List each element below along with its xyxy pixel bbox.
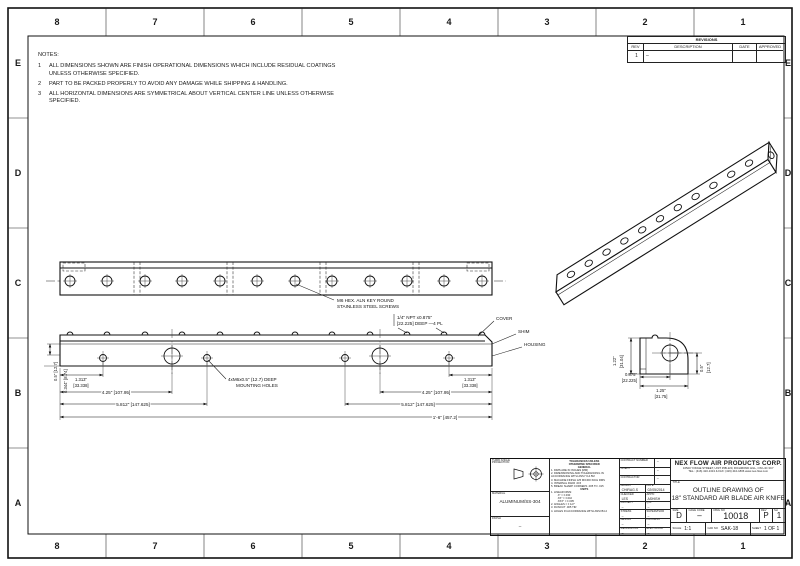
tol-units-7: 4. HOLES IN ACCORDANCE WITH ANSI B4.2 (551, 510, 618, 513)
approved-value: ASHISH (646, 497, 661, 501)
drawing-title-line1: OUTLINE DRAWING OF (671, 487, 785, 494)
callout-mounting-line1: 4xM6x0.5" (12.7) DEEP (228, 377, 277, 382)
cad-label: CAD NO (706, 528, 718, 531)
rev-row-date (733, 51, 757, 62)
title-block-column-d: NEX FLOW AIR PRODUCTS CORP. 10520 YONGE … (671, 459, 785, 535)
scale-cell: SCALE 1:1 (671, 523, 706, 535)
design-label: DESIGN (620, 519, 645, 522)
zone-right-b: B (785, 388, 792, 398)
process-label: PROCESS (646, 519, 671, 522)
zone-left-e: E (15, 58, 21, 68)
notes-block: NOTES: 1 ALL DIMENSIONS SHOWN ARE FINISH… (38, 52, 338, 109)
dim-side-0875-in: 0.875" (625, 372, 637, 377)
zone-left-a: A (15, 498, 22, 508)
zone-top-8: 8 (54, 17, 59, 27)
zone-top-4: 4 (446, 17, 451, 27)
contractor-value: – (655, 476, 659, 480)
rev-value: P (760, 512, 772, 520)
top-view (46, 262, 506, 295)
company-address2: TEL.: (416) 410-1313 & FAX: (416) 410-18… (671, 470, 785, 473)
notes-title: NOTES: (38, 52, 338, 59)
top-view-outline (60, 262, 492, 295)
dim-side-0875-mm: [22.225] (622, 378, 637, 383)
size-cell: SIZE D (671, 509, 687, 522)
zone-bottom-4: 4 (446, 541, 451, 551)
electrical-value: – (646, 531, 650, 535)
contract-row: CONTRACT NUMBER – (620, 459, 671, 468)
title-block-fields: CONTRACT NUMBER – CLIENT – CONTRACTOR – … (620, 459, 672, 535)
zone-right-c: C (785, 278, 792, 288)
rev-col-description: DESCRIPTION (644, 44, 733, 51)
qa-value: – (646, 505, 650, 509)
rev-col-rev: REV (628, 44, 644, 51)
note-text: ALL HORIZONTAL DIMENSIONS ARE SYMMETRICA… (49, 91, 338, 106)
project-value: – (620, 505, 624, 509)
sh-cell: SH 1 (773, 509, 785, 522)
callout-npt-line2: [22.225] DEEP —4 PL (397, 321, 443, 326)
drawn-value: CHIRAG.S (620, 488, 638, 492)
dwg-value: 10018 (712, 512, 759, 521)
zone-left-c: C (15, 278, 22, 288)
checked-approved-row: CHECKEDLES APP'DASHISH (620, 493, 671, 502)
material-value: ALUMINUM/SS-304 (491, 499, 549, 504)
client-label: CLIENT (620, 468, 654, 471)
dim-5812-right: 5.812" [147.625] (401, 402, 435, 407)
client-value: – (655, 468, 659, 472)
note-item: 1 ALL DIMENSIONS SHOWN ARE FINISH OPERAT… (38, 63, 338, 78)
checked-value: LES (620, 497, 628, 501)
contractor-label: CONTRACTOR (620, 476, 654, 479)
stress-supervisor-row: STRESS– SUPERVISOR– (620, 510, 671, 519)
finish-cell: FINISH – (491, 517, 549, 535)
note-item: 2 PART TO BE PACKED PROPERLY TO AVOID AN… (38, 81, 338, 88)
isometric-view (549, 142, 785, 304)
stress-label: STRESS (620, 510, 645, 513)
project-qa-row: PROJECT– Q.A.– (620, 502, 671, 511)
rev-col-date: DATE (733, 44, 757, 51)
electrical-label: ELECTRICAL (646, 528, 671, 531)
material-cell: MATERIAL ALUMINUM/SS-304 (491, 492, 549, 517)
dim-1313-left-in: 1.313" (75, 377, 87, 382)
rev-cell: REV P (760, 509, 773, 522)
projection-cell: THIRD ANGLE PROJECTION (491, 459, 549, 492)
zone-bottom-8: 8 (54, 541, 59, 551)
note-number: 2 (38, 81, 44, 88)
mechanical-label: MECHANICAL (620, 528, 645, 531)
zone-bottom-7: 7 (152, 541, 157, 551)
dim-height-v2: 0.344" [8.74] (63, 369, 68, 393)
zone-top-3: 3 (544, 17, 549, 27)
date-value: 02/05/2014 (646, 488, 665, 492)
drawing-title-line2: 18" STANDARD AIR BLADE AIR KNIFE (671, 495, 785, 502)
dim-side-height-in: 1.22" (612, 356, 617, 366)
dim-side-width-in: 1.25" (656, 388, 666, 393)
zone-bottom-3: 3 (544, 541, 549, 551)
size-value: D (671, 512, 686, 520)
design-value: – (620, 522, 624, 526)
rev-col-approved: APPROVED (757, 44, 783, 51)
third-angle-projection-symbol (511, 459, 549, 489)
drawing-sheet: 1.313" [33.338] 1.313" [33.338] 4.25" [1… (0, 0, 800, 566)
dim-425-left: 4.25" [107.95] (102, 390, 130, 395)
zone-right-d: D (785, 168, 792, 178)
dwg-no-cell: DWG NO 10018 (712, 509, 760, 522)
callout-screws-line1: M6 HEX. ALN KEY ROUND (337, 298, 395, 303)
drawn-date-row: DRAWNCHIRAG.S DATE02/05/2014 (620, 485, 671, 494)
zone-bottom-2: 2 (642, 541, 647, 551)
design-process-row: DESIGN– PROCESS– (620, 519, 671, 528)
finish-label: FINISH (491, 517, 549, 520)
callout-housing: HOUSING (524, 342, 546, 347)
tolerances-cell: TOLERANCES UNLESS OTHERWISE SPECIFIED GE… (550, 459, 620, 535)
cad-no-cell: CAD NO SAK-18 (706, 523, 751, 535)
zone-top-6: 6 (250, 17, 255, 27)
callout-shim: SHIM (518, 329, 530, 334)
dim-side-05-in: 0.5" (699, 364, 704, 372)
note-number: 3 (38, 91, 44, 106)
dim-1313-right-in: 1.313" (464, 377, 476, 382)
revisions-title: REVISIONS (628, 37, 785, 44)
zone-left-d: D (15, 168, 22, 178)
note-item: 3 ALL HORIZONTAL DIMENSIONS ARE SYMMETRI… (38, 91, 338, 106)
dim-425-right: 4.25" [107.95] (422, 390, 450, 395)
zone-bottom-5: 5 (348, 541, 353, 551)
dim-height-v1: 0.5" [12.7] (53, 362, 58, 381)
cage-value: – (687, 512, 711, 520)
dim-side-height-mm: [31.04] (619, 355, 624, 368)
project-label: PROJECT (620, 502, 645, 505)
callout-npt-line1: 1/4" NPT x0.875" (397, 315, 432, 320)
sh-value: 1 (773, 512, 785, 520)
projection-label: THIRD ANGLE PROJECTION (491, 459, 511, 491)
contractor-row: CONTRACTOR – (620, 476, 671, 485)
dim-1313-left-mm: [33.338] (73, 383, 88, 388)
note-number: 1 (38, 63, 44, 78)
sheet-cell: SHEET 1 OF 1 (751, 523, 785, 535)
dim-side-width-mm: [31.75] (655, 394, 668, 399)
mechanical-value: – (620, 531, 624, 535)
front-view-outline (60, 335, 492, 366)
drawing-title-cell: TITLE OUTLINE DRAWING OF 18" STANDARD AI… (671, 481, 785, 509)
scale-value: 1:1 (684, 526, 691, 532)
title-block: THIRD ANGLE PROJECTION MATERIAL ALUMINUM… (490, 458, 786, 536)
contract-value: – (655, 459, 659, 463)
title-label: TITLE (671, 481, 680, 484)
cage-cell: CAGE CODE – (687, 509, 712, 522)
side-view (640, 332, 702, 380)
dim-overall: 1'-6" [457.2] (433, 415, 457, 420)
scale-label: SCALE (671, 528, 682, 531)
process-value: – (646, 522, 650, 526)
sheet-label: SHEET (751, 528, 762, 531)
callout-cover: COVER (496, 316, 513, 321)
rev-row-rev: 1 (628, 51, 644, 62)
note-text: PART TO BE PACKED PROPERLY TO AVOID ANY … (49, 81, 288, 88)
side-view-outline (640, 335, 688, 374)
zone-left-b: B (15, 388, 22, 398)
zone-top-2: 2 (642, 17, 647, 27)
zone-top-1: 1 (740, 17, 745, 27)
qa-label: Q.A. (646, 502, 671, 505)
note-text: ALL DIMENSIONS SHOWN ARE FINISH OPERATIO… (49, 63, 338, 78)
finish-value: – (491, 524, 549, 529)
callout-screws-line2: STAINLESS STEEL SCREWS (337, 304, 399, 309)
rev-row-approved (757, 51, 783, 62)
client-row: CLIENT – (620, 468, 671, 477)
stress-value: – (620, 514, 624, 518)
supervisor-value: – (646, 514, 650, 518)
front-view (60, 329, 492, 374)
number-row: SIZE D CAGE CODE – DWG NO 10018 REV P SH (671, 509, 785, 523)
dim-5812-left: 5.812" [147.625] (116, 402, 150, 407)
company-cell: NEX FLOW AIR PRODUCTS CORP. 10520 YONGE … (671, 459, 785, 481)
sheet-value: 1 OF 1 (764, 526, 779, 532)
scale-row: SCALE 1:1 CAD NO SAK-18 SHEET 1 OF 1 (671, 523, 785, 535)
zone-bottom-6: 6 (250, 541, 255, 551)
revisions-table: REVISIONS REV DESCRIPTION DATE APPROVED … (627, 36, 786, 63)
title-block-column-a: THIRD ANGLE PROJECTION MATERIAL ALUMINUM… (491, 459, 550, 535)
zone-bottom-1: 1 (740, 541, 745, 551)
rev-row-description: – (644, 51, 733, 62)
dim-side-05-mm: [12.7] (706, 363, 711, 373)
mechanical-electrical-row: MECHANICAL– ELECTRICAL– (620, 528, 671, 536)
cad-value: SAK-18 (721, 526, 738, 532)
supervisor-label: SUPERVISOR (646, 510, 671, 513)
zone-top-5: 5 (348, 17, 353, 27)
contract-label: CONTRACT NUMBER (620, 459, 654, 462)
dim-1313-right-mm: [33.338] (462, 383, 477, 388)
callout-mounting-line2: MOUNTING HOLES (236, 383, 278, 388)
zone-top-7: 7 (152, 17, 157, 27)
material-label: MATERIAL (491, 492, 549, 495)
